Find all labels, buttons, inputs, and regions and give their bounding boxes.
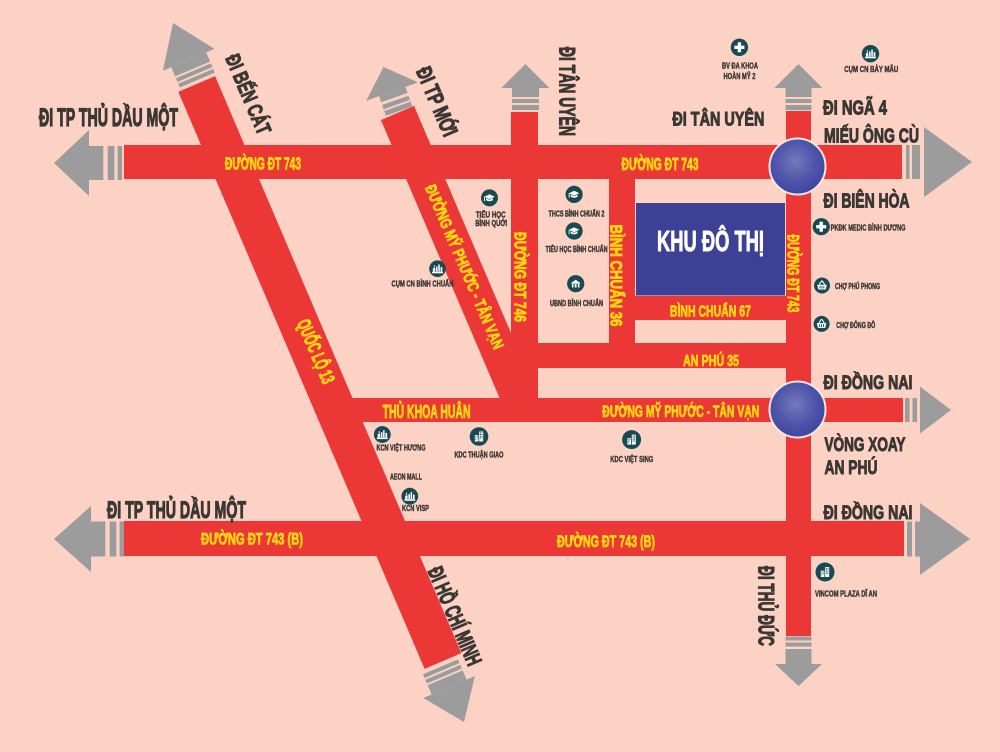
svg-text:MIẾU ÔNG CÙ: MIẾU ÔNG CÙ: [824, 123, 919, 147]
svg-text:KDC THUẬN GIAO: KDC THUẬN GIAO: [455, 451, 504, 460]
svg-text:THCS BÌNH CHUẨN 2: THCS BÌNH CHUẨN 2: [549, 208, 605, 219]
svg-text:ĐƯỜNG ĐT 743 (B): ĐƯỜNG ĐT 743 (B): [557, 532, 655, 551]
svg-text:BV ĐA KHOA: BV ĐA KHOA: [722, 61, 758, 71]
svg-text:BÌNH QUỚI: BÌNH QUỚI: [475, 217, 507, 228]
svg-text:AEON MALL: AEON MALL: [390, 473, 422, 482]
svg-text:ĐƯỜNG ĐT 743: ĐƯỜNG ĐT 743: [225, 152, 301, 173]
svg-text:THỦ KHOA HUÂN: THỦ KHOA HUÂN: [383, 401, 471, 422]
svg-text:KDC VIỆT SING: KDC VIỆT SING: [610, 455, 653, 464]
svg-text:VINCOM PLAZA DĨ AN: VINCOM PLAZA DĨ AN: [815, 588, 877, 598]
svg-text:ĐƯỜNG ĐT 743 (B): ĐƯỜNG ĐT 743 (B): [201, 530, 303, 549]
svg-text:BÌNH CHUẨN 67: BÌNH CHUẨN 67: [670, 301, 751, 320]
svg-text:TIỂU HỌC BÌNH CHUẨN: TIỂU HỌC BÌNH CHUẨN: [546, 243, 608, 254]
svg-text:ĐI TÂN UYÊN: ĐI TÂN UYÊN: [672, 109, 764, 131]
svg-text:ĐI TP THỦ DẦU MỘT: ĐI TP THỦ DẦU MỘT: [39, 102, 178, 132]
svg-text:PKĐK MEDIC BÌNH DƯƠNG: PKĐK MEDIC BÌNH DƯƠNG: [831, 223, 906, 233]
svg-text:HOÀN MỸ 2: HOÀN MỸ 2: [724, 71, 756, 81]
svg-text:ĐƯỜNG MỸ PHƯỚC - TÂN VẠN: ĐƯỜNG MỸ PHƯỚC - TÂN VẠN: [602, 401, 759, 421]
svg-text:ĐI ĐỒNG NAI: ĐI ĐỒNG NAI: [824, 372, 913, 394]
svg-text:KCN VIỆT HƯƠNG: KCN VIỆT HƯƠNG: [377, 444, 426, 453]
svg-text:CHỢ PHÚ PHONG: CHỢ PHÚ PHONG: [835, 280, 880, 291]
svg-text:KHU ĐÔ THỊ: KHU ĐÔ THỊ: [657, 224, 764, 258]
svg-text:BÌNH CHUẨN 36: BÌNH CHUẨN 36: [607, 225, 626, 327]
svg-text:ĐI NGÃ 4: ĐI NGÃ 4: [823, 97, 888, 120]
svg-text:UBND BÌNH CHUẨN: UBND BÌNH CHUẨN: [550, 297, 603, 308]
svg-text:KCN VISP: KCN VISP: [402, 504, 429, 513]
svg-text:AN PHÚ: AN PHÚ: [825, 455, 878, 479]
svg-text:CỤM CN BÌNH CHUẨN: CỤM CN BÌNH CHUẨN: [392, 278, 454, 289]
svg-text:ĐI ĐỒNG NAI: ĐI ĐỒNG NAI: [824, 502, 913, 524]
svg-text:VÒNG XOAY: VÒNG XOAY: [825, 432, 906, 456]
svg-text:ĐI BIÊN HÒA: ĐI BIÊN HÒA: [824, 188, 910, 212]
svg-text:CỤM CN BẢY MẪU: CỤM CN BẢY MẪU: [844, 63, 898, 74]
svg-text:CHỢ ĐÔNG ĐÔ: CHỢ ĐÔNG ĐÔ: [836, 319, 875, 330]
svg-text:AN PHÚ 35: AN PHÚ 35: [683, 351, 739, 370]
svg-text:ĐI THỦ ĐỨC: ĐI THỦ ĐỨC: [753, 566, 778, 646]
svg-text:ĐƯỜNG ĐT 743: ĐƯỜNG ĐT 743: [784, 235, 803, 313]
svg-text:ĐƯỜNG ĐT 746: ĐƯỜNG ĐT 746: [511, 232, 530, 322]
svg-text:ĐI TÂN UYÊN: ĐI TÂN UYÊN: [555, 47, 580, 136]
svg-text:ĐƯỜNG ĐT 743: ĐƯỜNG ĐT 743: [622, 153, 699, 174]
svg-text:ĐI TP THỦ DẦU MỘT: ĐI TP THỦ DẦU MỘT: [107, 495, 246, 524]
